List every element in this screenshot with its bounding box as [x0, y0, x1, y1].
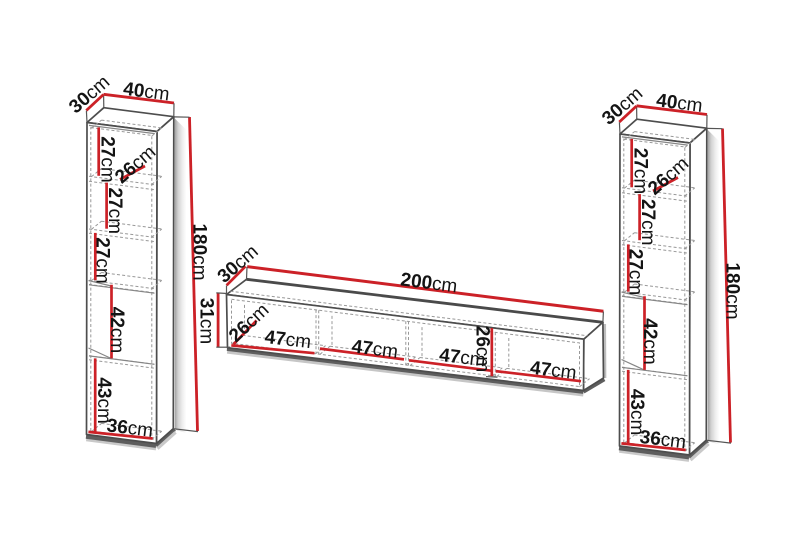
svg-text:26cm: 26cm: [471, 326, 492, 372]
svg-text:180cm: 180cm: [189, 223, 210, 280]
svg-text:31cm: 31cm: [195, 298, 216, 344]
svg-text:180cm: 180cm: [722, 262, 743, 319]
